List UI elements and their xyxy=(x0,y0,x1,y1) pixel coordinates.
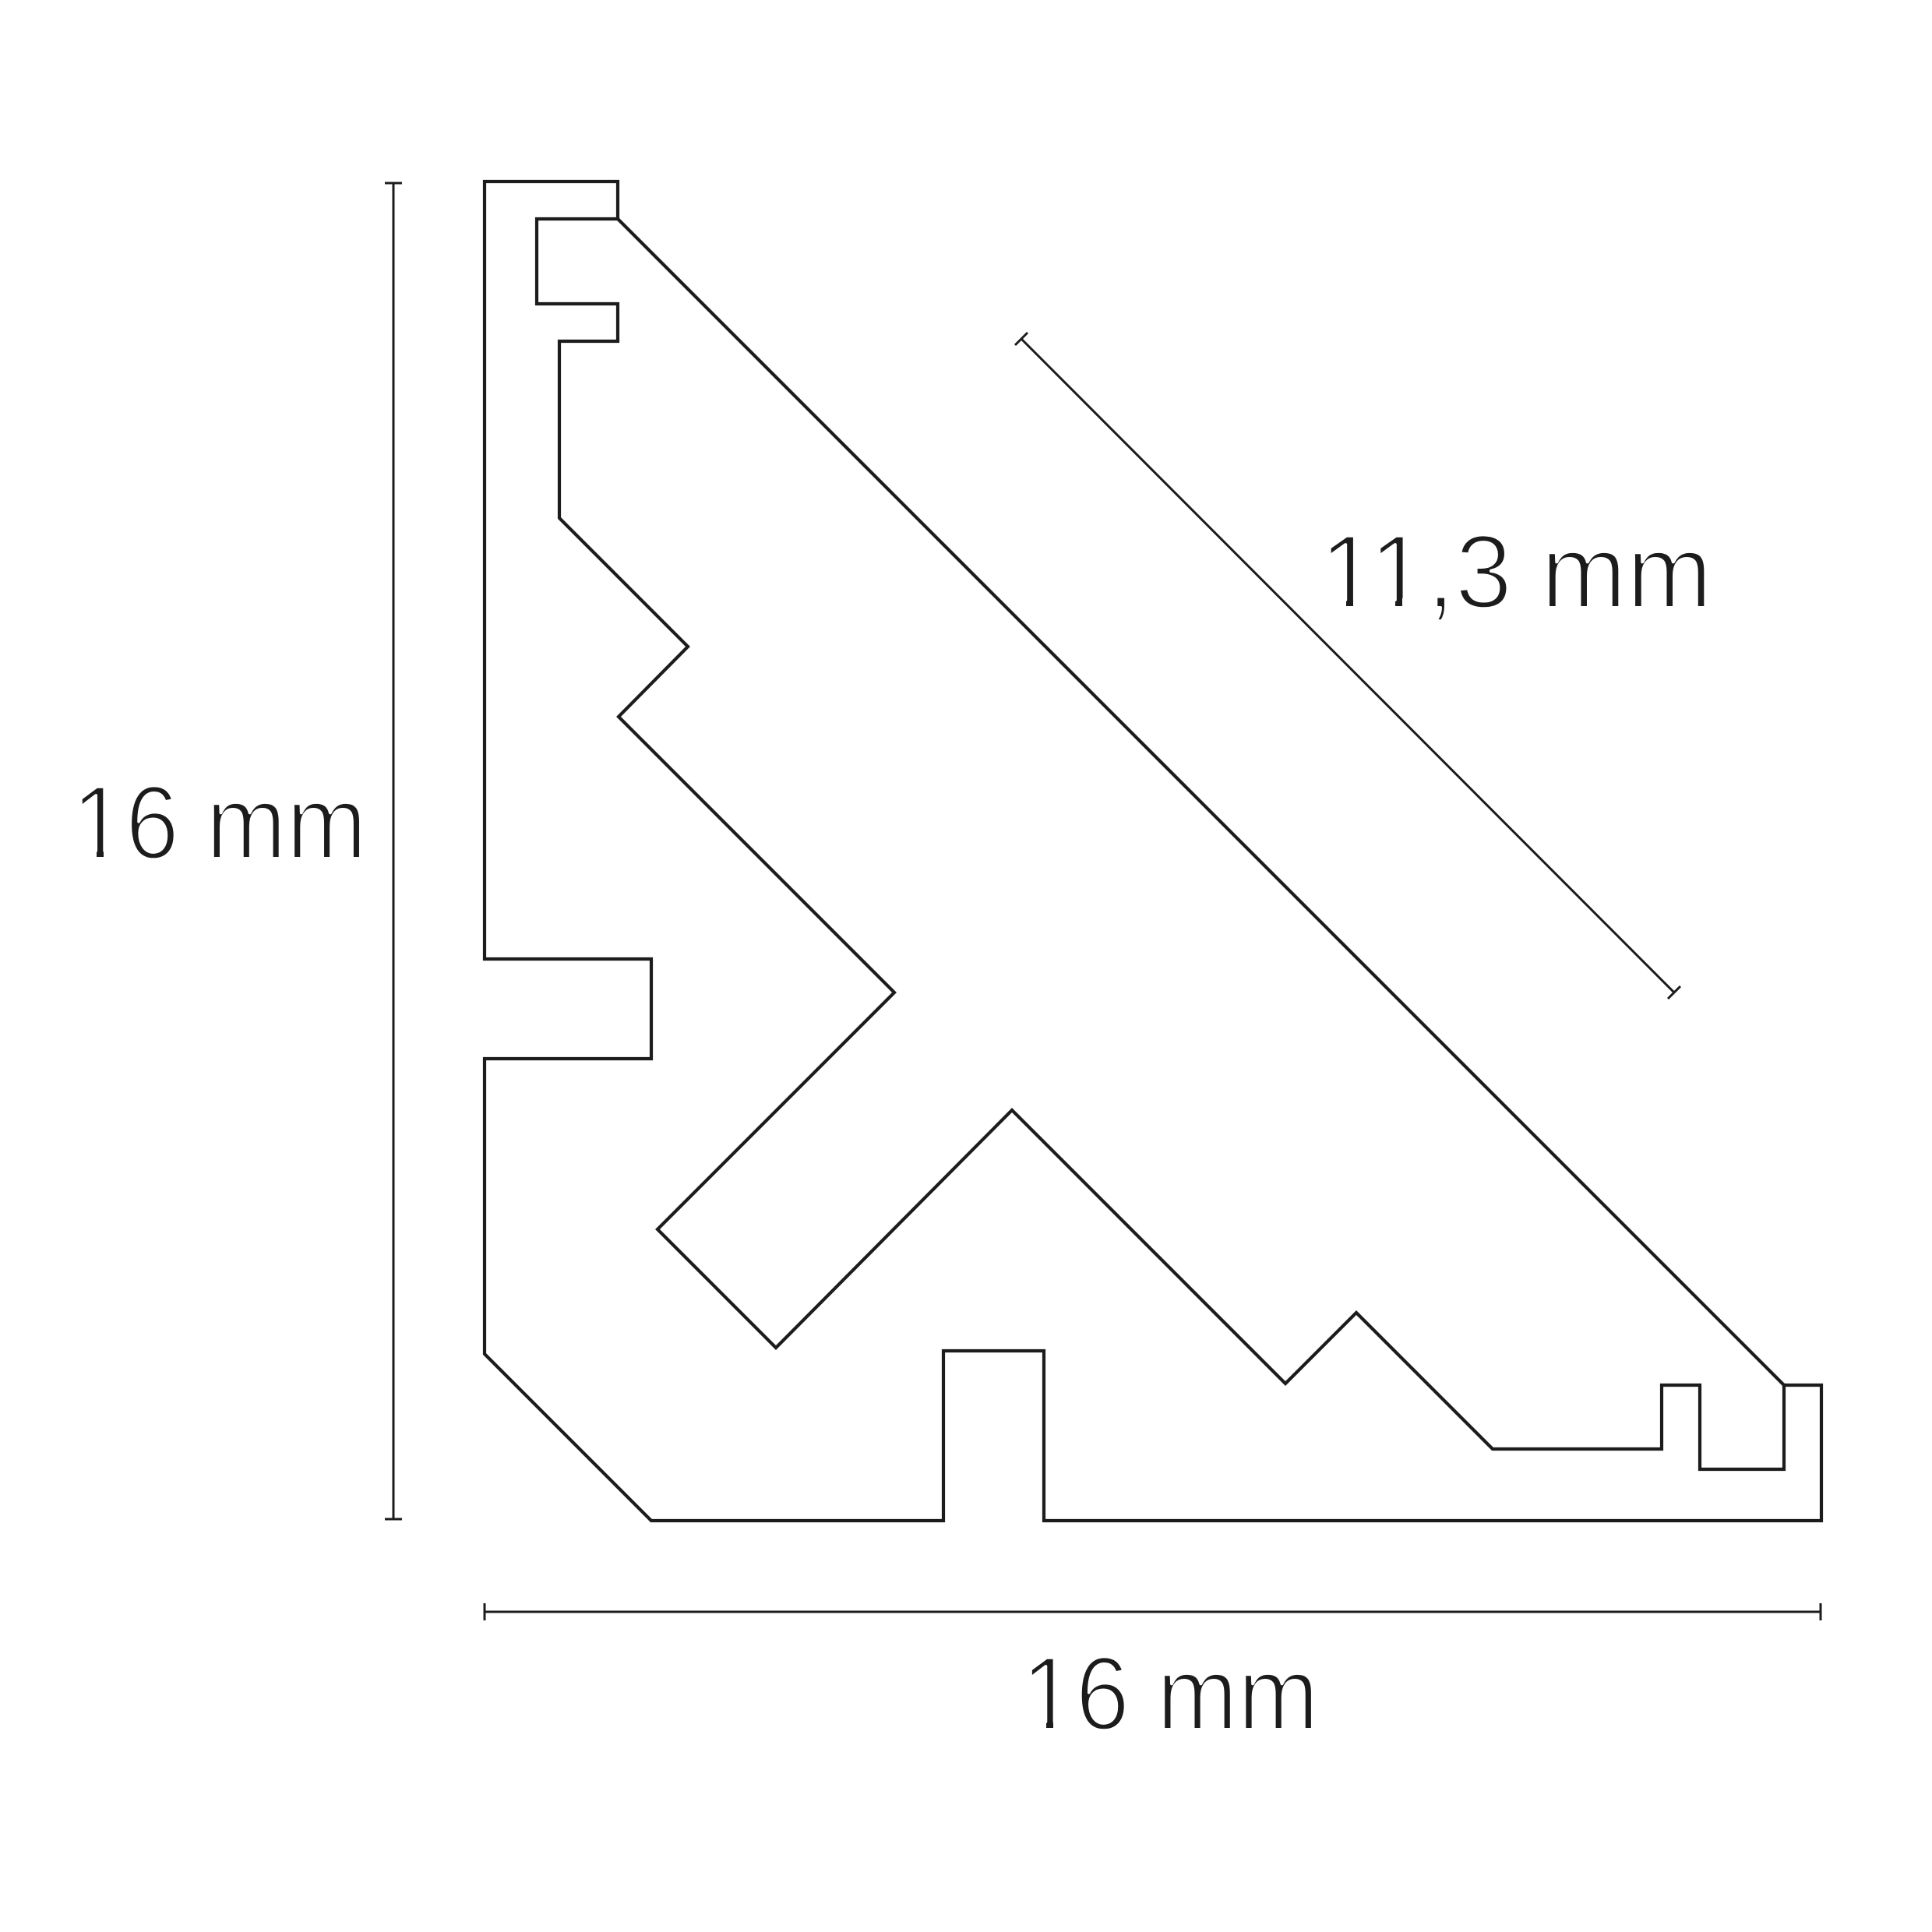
svg-text:16 mm: 16 mm xyxy=(1021,1636,1319,1752)
svg-text:16 mm: 16 mm xyxy=(72,765,367,881)
svg-text:11,3 mm: 11,3 mm xyxy=(1320,514,1712,630)
